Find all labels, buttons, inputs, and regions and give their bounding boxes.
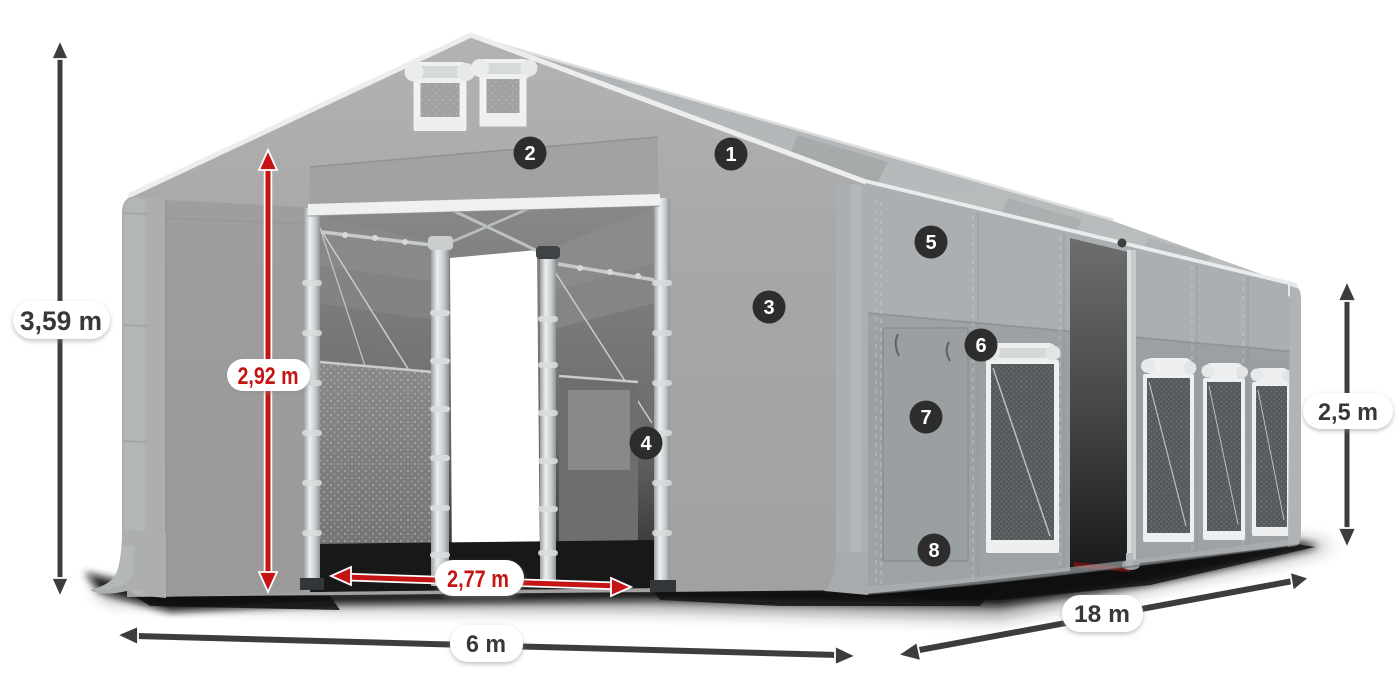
svg-text:2,92 m: 2,92 m xyxy=(238,363,299,390)
svg-text:2,77 m: 2,77 m xyxy=(447,566,509,593)
svg-text:2,5 m: 2,5 m xyxy=(1318,399,1378,426)
svg-text:6 m: 6 m xyxy=(466,631,506,658)
svg-text:2: 2 xyxy=(524,143,535,165)
svg-text:4: 4 xyxy=(640,433,652,455)
svg-text:6: 6 xyxy=(975,335,986,357)
svg-text:3,59 m: 3,59 m xyxy=(20,306,102,336)
svg-text:5: 5 xyxy=(925,232,936,254)
svg-text:8: 8 xyxy=(928,540,939,562)
svg-text:1: 1 xyxy=(725,144,736,166)
svg-text:18 m: 18 m xyxy=(1074,601,1130,628)
svg-text:3: 3 xyxy=(763,297,774,319)
svg-text:7: 7 xyxy=(920,407,931,429)
